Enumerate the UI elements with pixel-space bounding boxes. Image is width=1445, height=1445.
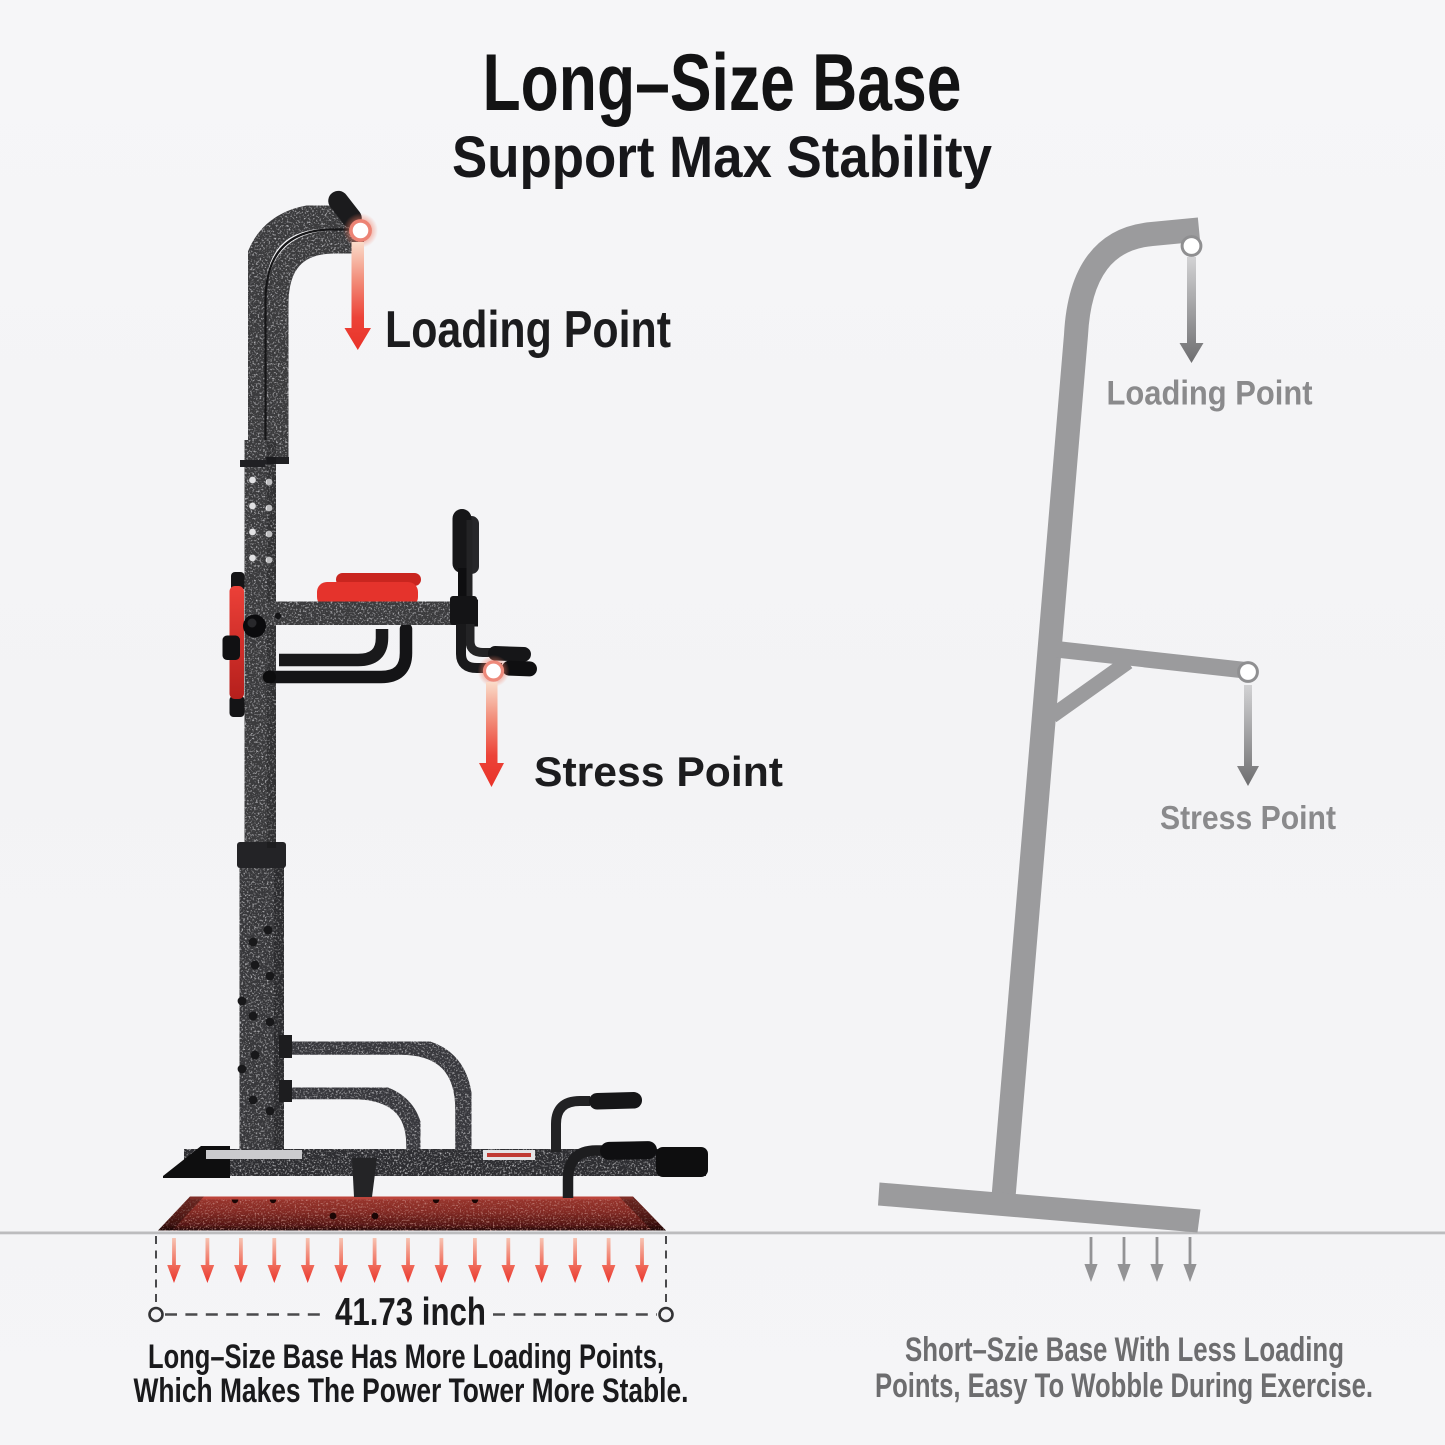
svg-text:Loading Point: Loading Point (1107, 375, 1313, 413)
svg-text:Long–Size Base Has More Loadin: Long–Size Base Has More Loading Points, (148, 1338, 664, 1376)
svg-text:41.73 inch: 41.73 inch (335, 1291, 486, 1334)
svg-text:Points, Easy To Wobble During: Points, Easy To Wobble During Exercise. (875, 1367, 1373, 1405)
svg-text:Short–Szie Base With Less Load: Short–Szie Base With Less Loading (905, 1331, 1344, 1369)
svg-text:Stress Point: Stress Point (534, 748, 783, 795)
svg-text:Support Max Stability: Support Max Stability (452, 125, 992, 190)
svg-text:Long–Size Base: Long–Size Base (483, 38, 962, 128)
svg-text:Stress Point: Stress Point (1160, 800, 1336, 837)
svg-text:Which Makes The Power Tower Mo: Which Makes The Power Tower More Stable. (134, 1372, 689, 1410)
svg-text:Loading Point: Loading Point (385, 301, 671, 359)
